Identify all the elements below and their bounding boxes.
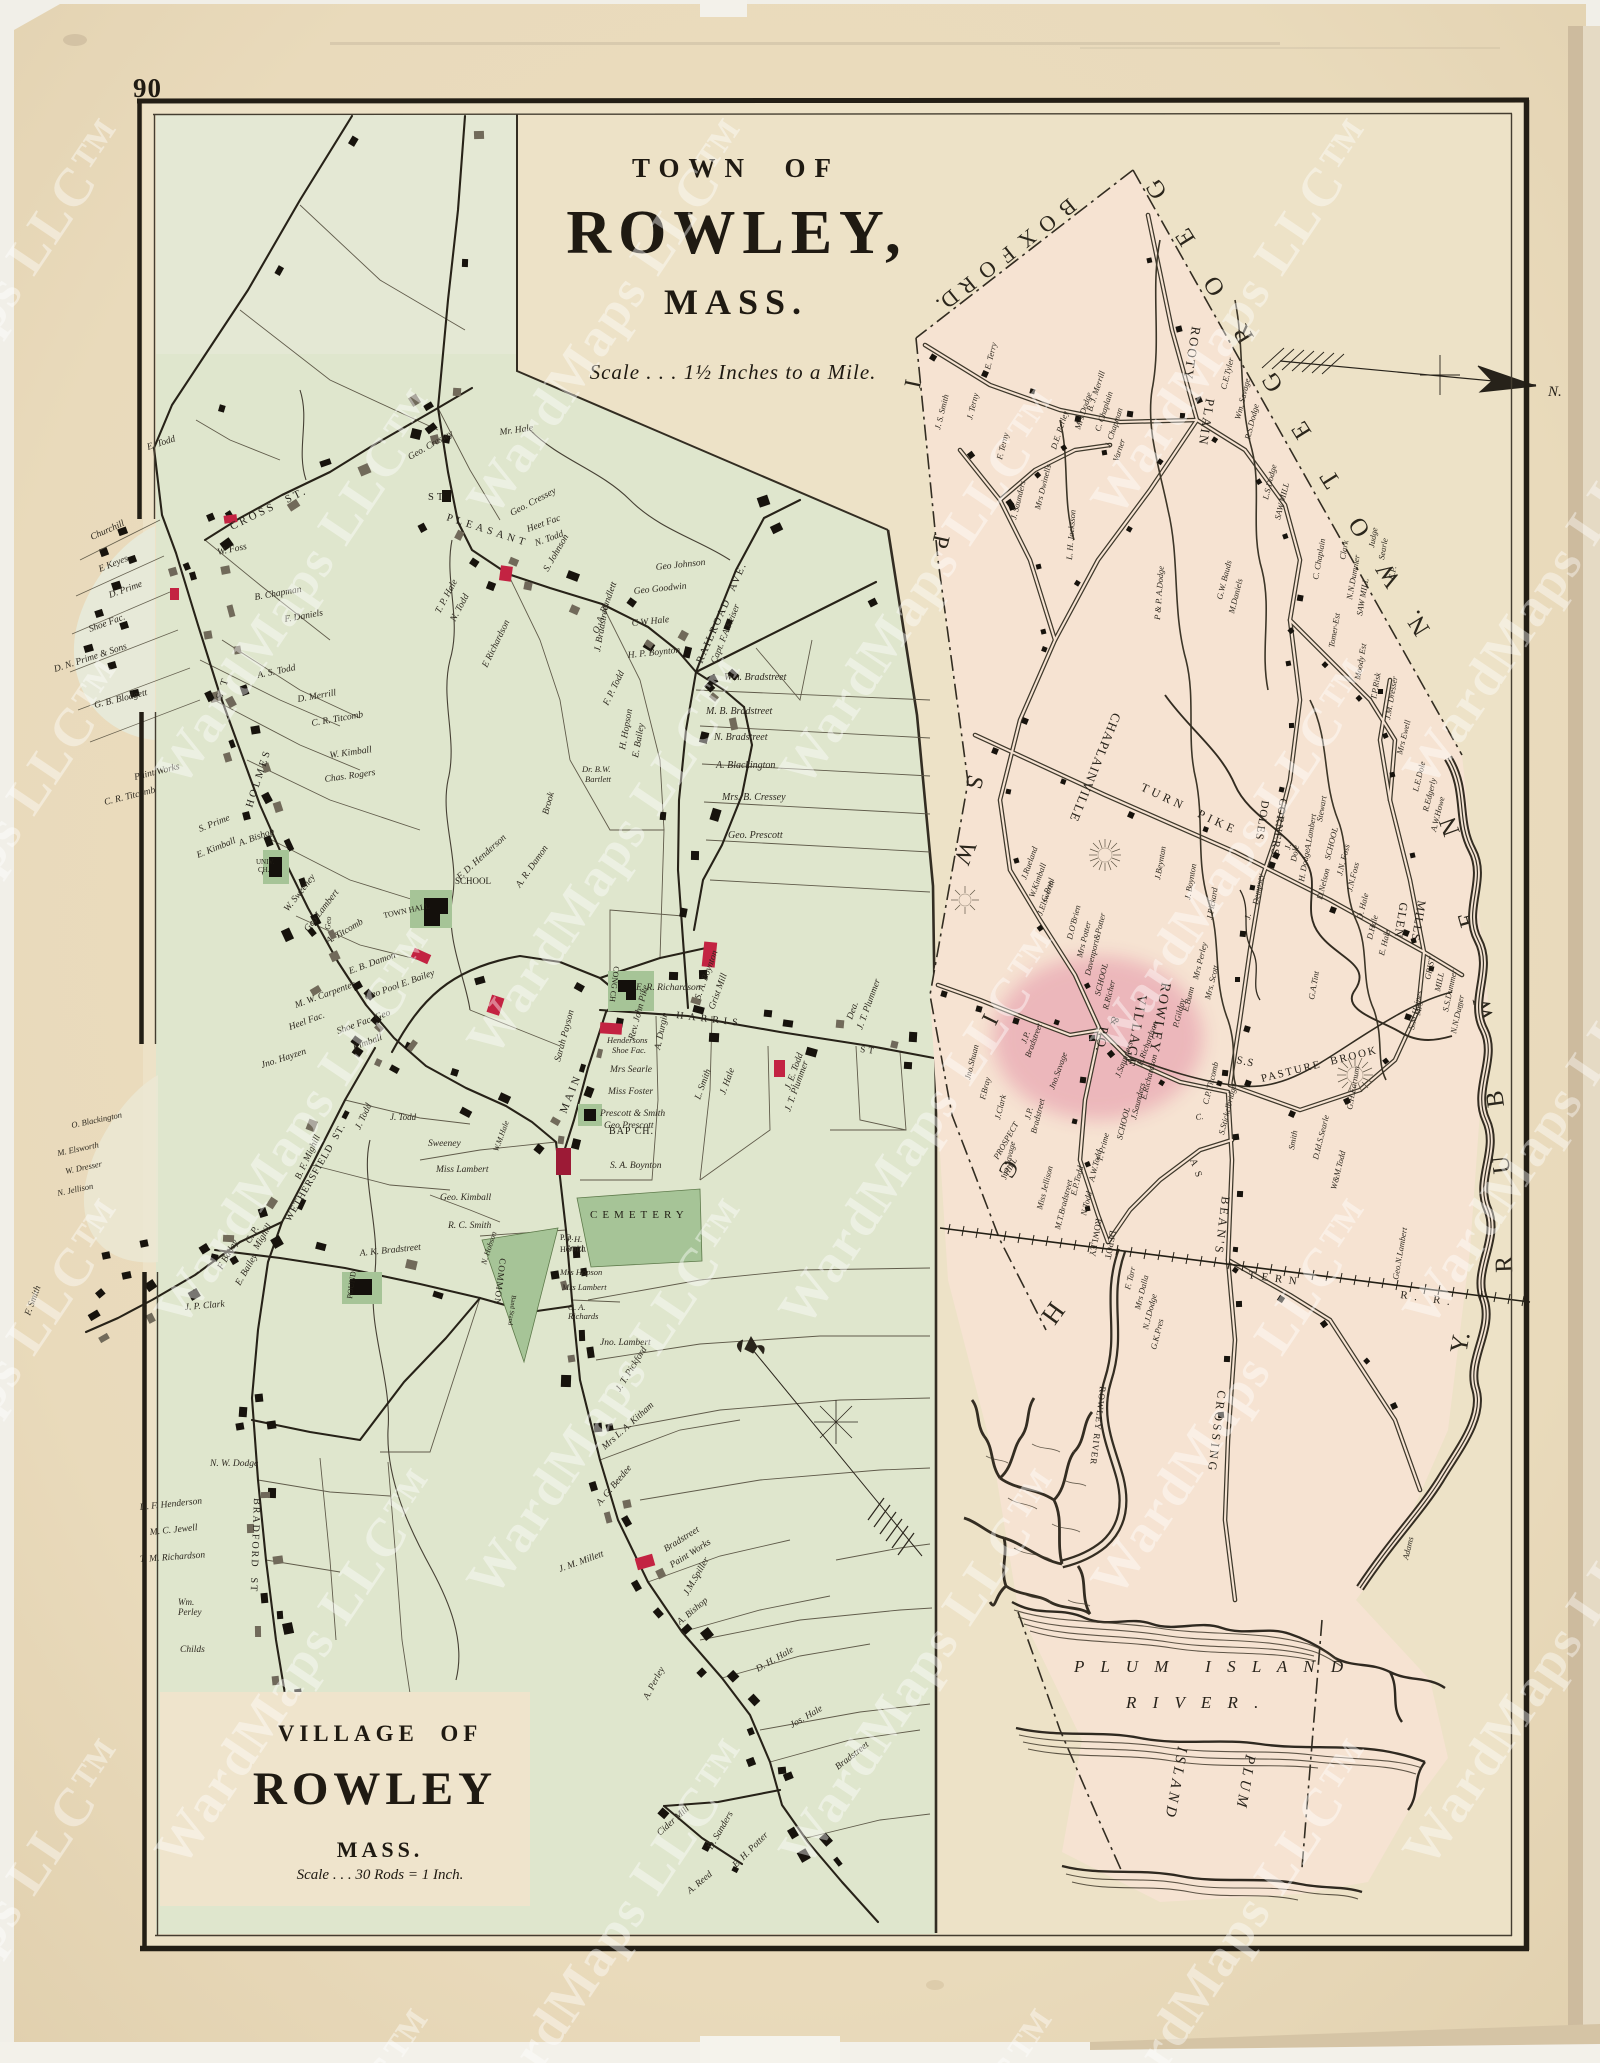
svg-text:N.: N. xyxy=(1547,384,1562,400)
svg-text:Childs: Childs xyxy=(180,1645,205,1655)
svg-text:Bartlett: Bartlett xyxy=(585,774,612,784)
svg-text:R I V E R .: R I V E R . xyxy=(1125,1693,1264,1712)
svg-text:UNIV.: UNIV. xyxy=(256,858,275,866)
svg-text:Sweeney: Sweeney xyxy=(428,1139,461,1149)
svg-text:S. A. Boynton: S. A. Boynton xyxy=(610,1161,662,1171)
svg-text:Hendersons: Hendersons xyxy=(606,1035,648,1045)
svg-text:ST: ST xyxy=(860,1044,878,1056)
svg-text:Scale . . . 1½ Inches to a Mil: Scale . . . 1½ Inches to a Mile. xyxy=(590,360,877,384)
svg-text:E. R. Richardson: E. R. Richardson xyxy=(635,983,701,993)
svg-text:90: 90 xyxy=(133,73,162,103)
svg-text:Geo. Prescott: Geo. Prescott xyxy=(728,830,783,841)
svg-text:Geo. Kimball: Geo. Kimball xyxy=(440,1193,492,1203)
svg-text:Miss Lambert: Miss Lambert xyxy=(435,1165,489,1175)
svg-text:R: R xyxy=(1491,1255,1519,1273)
svg-text:Shoe Fac.: Shoe Fac. xyxy=(612,1045,646,1055)
svg-text:Prescott & Smith: Prescott & Smith xyxy=(599,1109,665,1119)
svg-text:Wm.: Wm. xyxy=(178,1597,194,1607)
svg-text:Mrs Hopson: Mrs Hopson xyxy=(559,1267,602,1277)
svg-text:ST: ST xyxy=(428,492,446,503)
svg-text:MASS.: MASS. xyxy=(664,282,808,322)
svg-text:Mrs Searle: Mrs Searle xyxy=(609,1065,652,1075)
svg-text:C.: C. xyxy=(1195,1111,1204,1122)
svg-text:Dr. B.W.: Dr. B.W. xyxy=(581,764,611,774)
svg-text:Smith: Smith xyxy=(566,1243,585,1253)
svg-text:Miss Foster: Miss Foster xyxy=(607,1087,653,1097)
svg-text:J. Todd: J. Todd xyxy=(390,1112,417,1122)
svg-text:Mrs. B. Cressey: Mrs. B. Cressey xyxy=(721,792,786,803)
svg-text:VILLAGE OF: VILLAGE OF xyxy=(278,1721,483,1746)
svg-text:Perley: Perley xyxy=(177,1607,201,1617)
svg-text:R. C. Smith: R. C. Smith xyxy=(447,1221,492,1231)
svg-text:ROWLEY: ROWLEY xyxy=(253,1763,497,1815)
svg-text:Geo Prescott: Geo Prescott xyxy=(604,1121,654,1131)
svg-text:Scale . . . 30 Rods = 1 Inch.: Scale . . . 30 Rods = 1 Inch. xyxy=(297,1867,464,1883)
svg-text:P L U M I S L A N D: P L U M I S L A N D xyxy=(1073,1657,1349,1676)
svg-text:Richards: Richards xyxy=(567,1311,599,1321)
svg-text:Geo: Geo xyxy=(323,916,333,930)
svg-text:CH.: CH. xyxy=(258,866,270,874)
svg-text:MASS.: MASS. xyxy=(337,1837,424,1862)
svg-text:CEMETERY: CEMETERY xyxy=(590,1209,689,1221)
svg-text:N. W. Dodge: N. W. Dodge xyxy=(209,1459,258,1469)
svg-text:Mrs Lambert: Mrs Lambert xyxy=(561,1282,607,1292)
